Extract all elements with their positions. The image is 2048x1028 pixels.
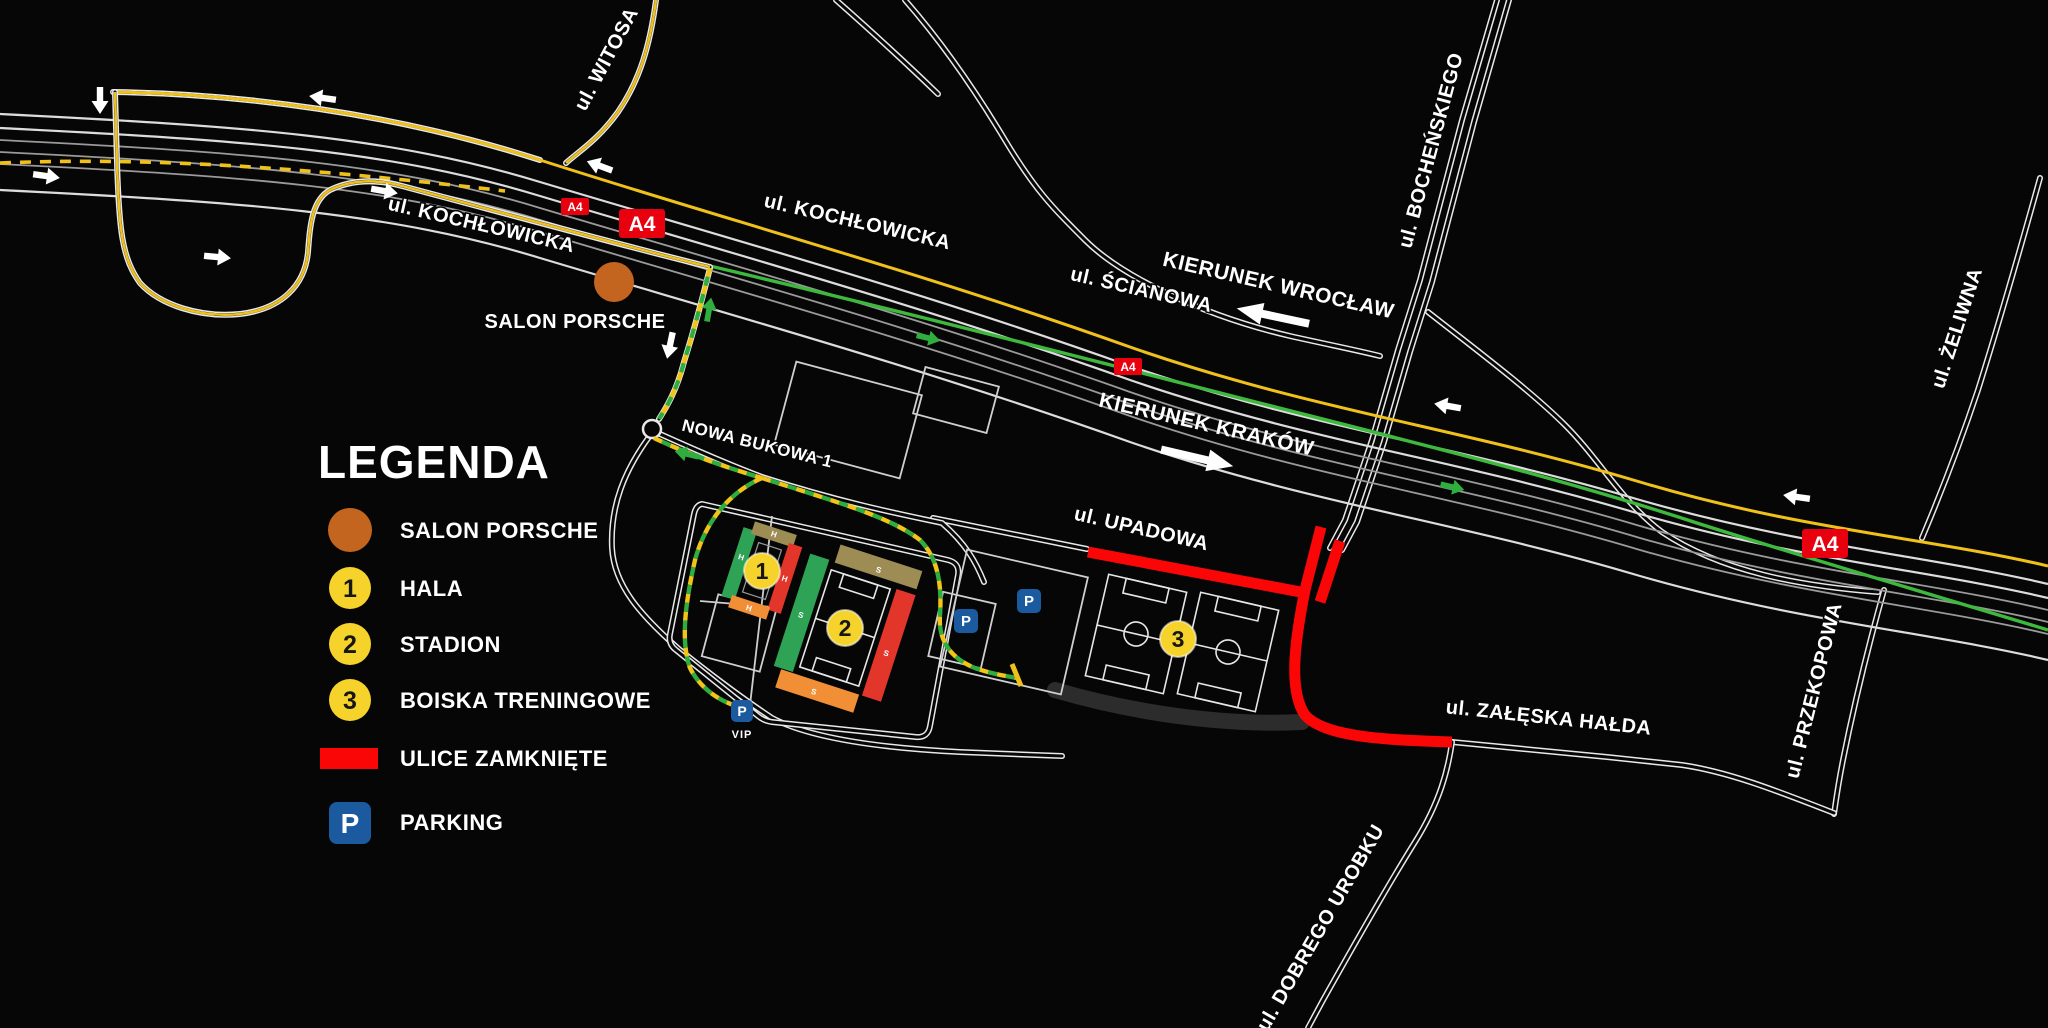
a4-badge-large-east: A4 <box>1802 529 1848 558</box>
roundabout <box>643 420 661 438</box>
legend-label: ULICE ZAMKNIĘTE <box>400 746 608 771</box>
svg-text:A4: A4 <box>1120 360 1136 374</box>
svg-text:A4: A4 <box>1812 533 1839 556</box>
legend-label: PARKING <box>400 810 503 835</box>
svg-text:VIP: VIP <box>732 729 753 741</box>
svg-text:3: 3 <box>1172 626 1185 652</box>
salon-porsche-label: SALON PORSCHE <box>485 311 666 333</box>
marker-hala: 1 <box>744 553 780 589</box>
legend-item-closed: ULICE ZAMKNIĘTE <box>320 746 608 771</box>
salon-porsche-icon <box>328 508 372 552</box>
marker-boiska: 3 <box>1160 621 1196 657</box>
legend-label: STADION <box>400 632 501 657</box>
salon-porsche-dot <box>594 262 634 302</box>
svg-text:2: 2 <box>839 615 852 641</box>
legend-number: 1 <box>343 575 357 603</box>
svg-text:1: 1 <box>756 558 769 584</box>
legend-number: 2 <box>343 631 357 659</box>
a4-badge-large-west: A4 <box>619 209 665 238</box>
parking-badge-1: P <box>954 609 978 633</box>
legend-label: SALON PORSCHE <box>400 518 598 543</box>
svg-text:P: P <box>1024 593 1034 610</box>
a4-badge-small-west: A4 <box>561 198 589 215</box>
parking-badge-2: P <box>1017 589 1041 613</box>
legend-label: BOISKA TRENINGOWE <box>400 688 651 713</box>
svg-text:P: P <box>961 613 971 630</box>
svg-text:A4: A4 <box>629 213 656 236</box>
map-background <box>0 0 2048 1028</box>
svg-text:A4: A4 <box>567 200 583 214</box>
legend-title: LEGENDA <box>318 436 550 488</box>
site-map: H H H H S S S S 1 2 3 P V <box>0 0 2048 1028</box>
svg-text:P: P <box>737 703 746 719</box>
parking-letter: P <box>341 808 360 839</box>
legend-label: HALA <box>400 576 463 601</box>
map-page: H H H H S S S S 1 2 3 P V <box>0 0 2048 1028</box>
marker-stadion: 2 <box>827 610 863 646</box>
a4-badge-small-mid: A4 <box>1114 358 1142 375</box>
closed-street-icon <box>320 748 378 769</box>
parking-badge-vip: P VIP <box>731 700 753 741</box>
legend-number: 3 <box>343 687 357 715</box>
